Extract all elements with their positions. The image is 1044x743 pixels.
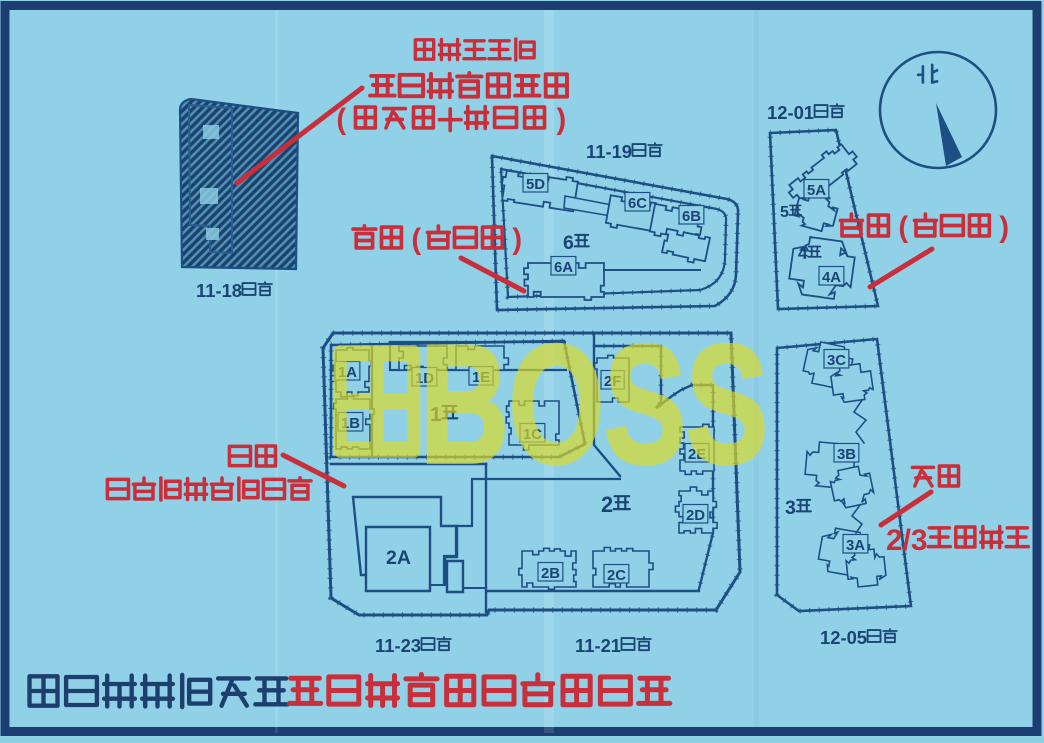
svg-text:11-18: 11-18 <box>196 280 242 301</box>
svg-text:6C: 6C <box>628 196 647 212</box>
svg-text:): ) <box>557 104 567 136</box>
svg-text:2C: 2C <box>607 568 626 584</box>
svg-text:4A: 4A <box>822 270 841 286</box>
svg-text:12-01: 12-01 <box>767 102 814 123</box>
svg-text:(: ( <box>411 224 421 256</box>
svg-text:2/3: 2/3 <box>886 524 928 557</box>
svg-text:5D: 5D <box>526 177 545 193</box>
svg-text:2A: 2A <box>386 547 411 569</box>
svg-text:(: ( <box>898 212 908 244</box>
svg-text:5A: 5A <box>807 183 826 199</box>
svg-text:3C: 3C <box>827 353 846 369</box>
svg-text:12-05: 12-05 <box>820 627 867 648</box>
svg-text:6B: 6B <box>682 209 701 225</box>
svg-text:5: 5 <box>780 203 789 221</box>
svg-text:6A: 6A <box>554 260 573 276</box>
svg-text:11-21: 11-21 <box>575 635 621 656</box>
svg-text:11-19: 11-19 <box>586 141 632 162</box>
svg-text:2B: 2B <box>541 566 560 582</box>
svg-text:6: 6 <box>563 232 574 254</box>
svg-text:): ) <box>512 224 522 256</box>
svg-text:3A: 3A <box>846 538 865 554</box>
svg-text:11-23: 11-23 <box>375 635 421 656</box>
svg-text:BOSS: BOSS <box>420 310 768 498</box>
svg-text:): ) <box>999 212 1009 244</box>
svg-text:3: 3 <box>785 497 796 519</box>
svg-text:2D: 2D <box>686 508 705 524</box>
svg-text:3B: 3B <box>837 447 856 463</box>
svg-text:4: 4 <box>798 243 808 263</box>
